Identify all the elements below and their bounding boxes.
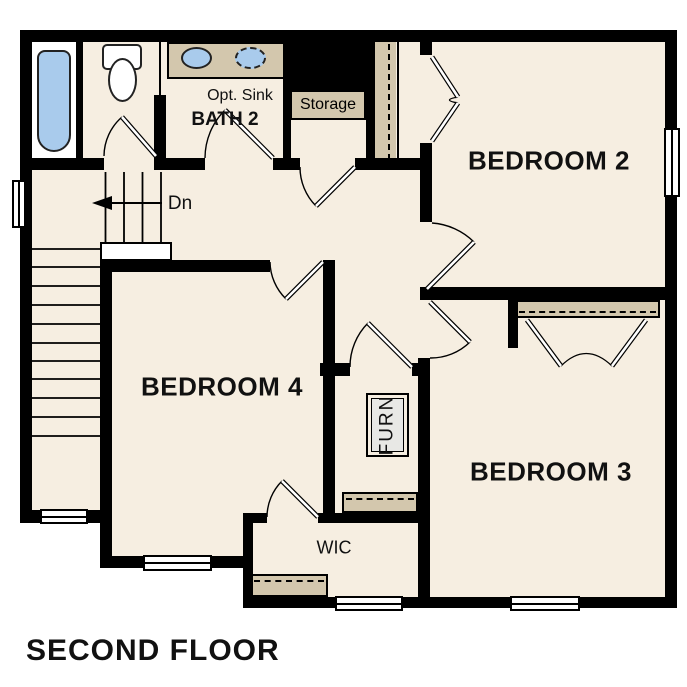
furnace-shelf-rod-dashed <box>346 498 414 500</box>
wall-exterior-right <box>665 30 677 608</box>
floor-area-bottom <box>243 300 677 608</box>
wall-bed2closet-stub-bottom <box>420 143 432 170</box>
furnace-closet-shelf <box>342 492 418 513</box>
room-label-bedroom3: BEDROOM 3 <box>470 457 632 488</box>
window <box>335 596 403 611</box>
window <box>40 509 88 524</box>
page-title: SECOND FLOOR <box>26 634 280 668</box>
bedroom3-closet-rod-dashed <box>519 311 656 313</box>
wall-storage-right <box>366 90 375 160</box>
optional-sink-label: Opt. Sink <box>207 87 273 105</box>
sink-icon <box>181 47 212 69</box>
wall-exterior-left <box>20 30 32 522</box>
wall-bedroom2-left <box>420 170 432 222</box>
bedroom2-closet-rod-dashed <box>388 44 390 160</box>
stairs-down-label: Dn <box>168 193 192 215</box>
wall-furnace-stub-right <box>412 363 430 376</box>
window <box>510 596 580 611</box>
room-label-bath2: BATH 2 <box>191 109 258 131</box>
bedroom2-closet-edge-line <box>397 42 399 162</box>
storage-label-box: Storage <box>290 90 366 120</box>
furnace-unit: FURN <box>366 393 409 457</box>
storage-label: Storage <box>300 96 356 114</box>
toilet-partition-line <box>159 42 161 97</box>
wic-shelf <box>250 574 328 597</box>
wall-wic-left <box>243 513 253 608</box>
furnace-unit-inner: FURN <box>371 398 404 452</box>
wall-chase-mass <box>283 37 375 90</box>
wall-bedroom4-top <box>100 260 270 272</box>
window <box>143 555 212 571</box>
bedroom3-closet-shelf <box>515 300 660 318</box>
wall-wic-top-a <box>243 513 267 523</box>
window <box>664 128 680 197</box>
wall-bath-bottom-a <box>20 158 104 170</box>
wall-bedroom3-left <box>418 358 430 597</box>
wall-bath-bottom-c <box>273 158 300 170</box>
wic-rod-dashed <box>254 580 324 582</box>
optional-sink-icon <box>235 47 266 69</box>
furnace-label: FURN <box>377 395 399 456</box>
wall-bed2-bed3-divider <box>420 287 677 300</box>
wall-exterior-bottom-right <box>243 597 677 608</box>
floor-area-stairhall <box>20 300 112 522</box>
bathtub-icon <box>37 50 71 152</box>
bedroom2-closet-shelf <box>375 42 396 162</box>
toilet-bowl-icon <box>108 58 137 102</box>
wall-bedroom4-left <box>100 260 112 568</box>
room-label-bedroom4: BEDROOM 4 <box>141 372 303 403</box>
wall-toilet-stub <box>154 95 166 170</box>
wall-bedroom4-right <box>323 260 335 513</box>
room-label-wic: WIC <box>317 538 352 559</box>
room-label-bedroom2: BEDROOM 2 <box>468 146 630 177</box>
wall-bed3closet-jamb <box>508 300 518 348</box>
stair-landing <box>100 242 172 261</box>
floorplan: Storage FURN <box>0 0 687 687</box>
window <box>12 180 26 228</box>
wall-wic-top-b <box>318 513 420 523</box>
wall-tub-divider <box>76 42 83 158</box>
wall-bed2closet-stub-top <box>420 42 432 55</box>
